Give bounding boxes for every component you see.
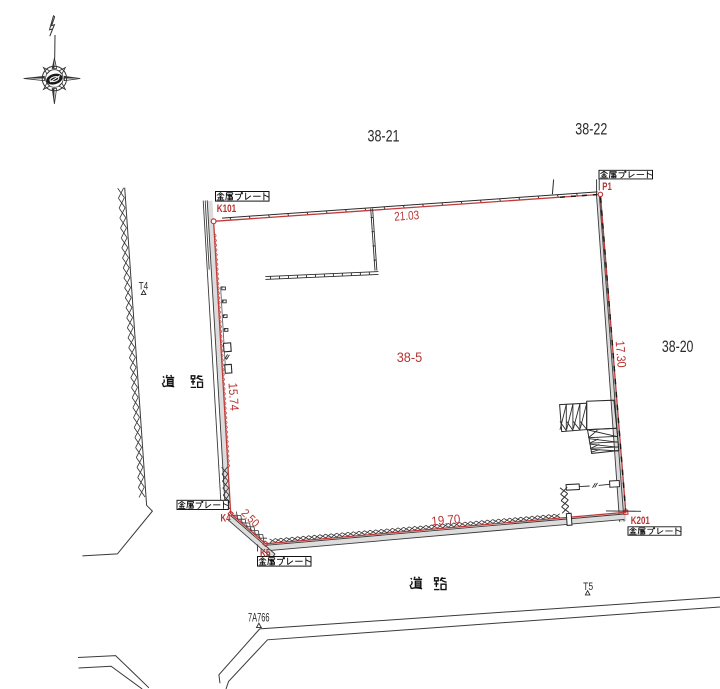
svg-text:38-22: 38-22 (575, 121, 607, 139)
svg-text:17.30: 17.30 (613, 340, 629, 368)
svg-text:P1: P1 (602, 181, 612, 193)
svg-text:38-20: 38-20 (662, 338, 694, 356)
svg-text:38-5: 38-5 (397, 349, 423, 365)
svg-text:K201: K201 (631, 515, 650, 527)
svg-text:38-21: 38-21 (368, 128, 400, 146)
svg-text:21.03: 21.03 (394, 208, 420, 224)
svg-text:K5: K5 (260, 547, 271, 559)
svg-text:K4: K4 (221, 512, 232, 524)
svg-text:19.70: 19.70 (431, 512, 461, 529)
svg-text:K101: K101 (217, 203, 237, 215)
svg-text:15.74: 15.74 (226, 382, 242, 411)
